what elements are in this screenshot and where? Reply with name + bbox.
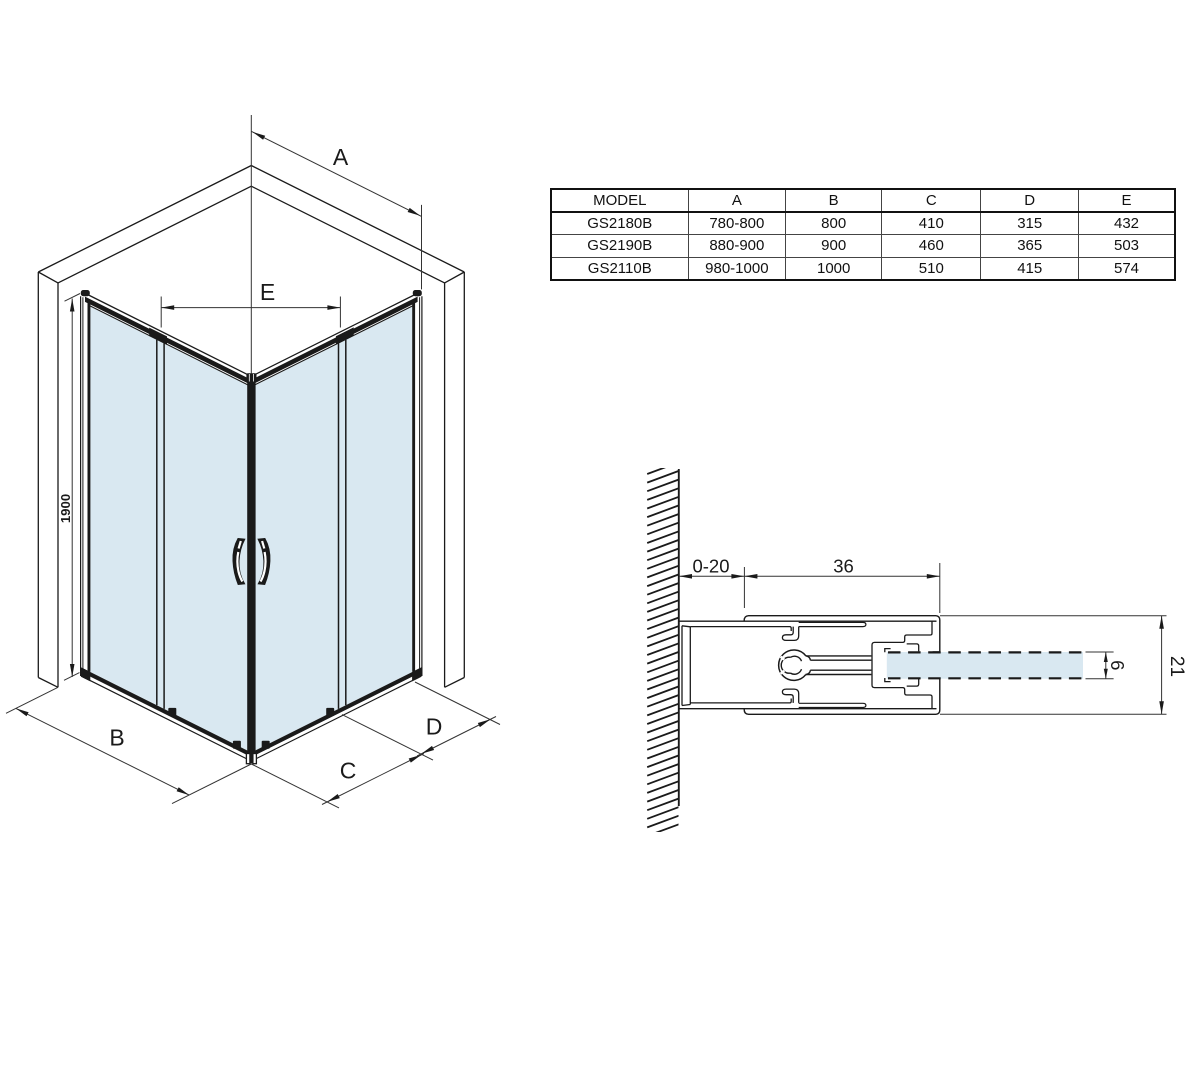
svg-text:C: C [340,758,357,784]
svg-text:0-20: 0-20 [692,556,729,577]
svg-text:D: D [426,714,443,740]
svg-text:E: E [260,279,275,305]
svg-text:36: 36 [833,556,854,577]
svg-text:6: 6 [1107,660,1128,670]
svg-text:B: B [109,725,124,751]
svg-text:1900: 1900 [58,494,73,523]
svg-text:21: 21 [1166,656,1187,677]
svg-text:A: A [333,144,349,170]
